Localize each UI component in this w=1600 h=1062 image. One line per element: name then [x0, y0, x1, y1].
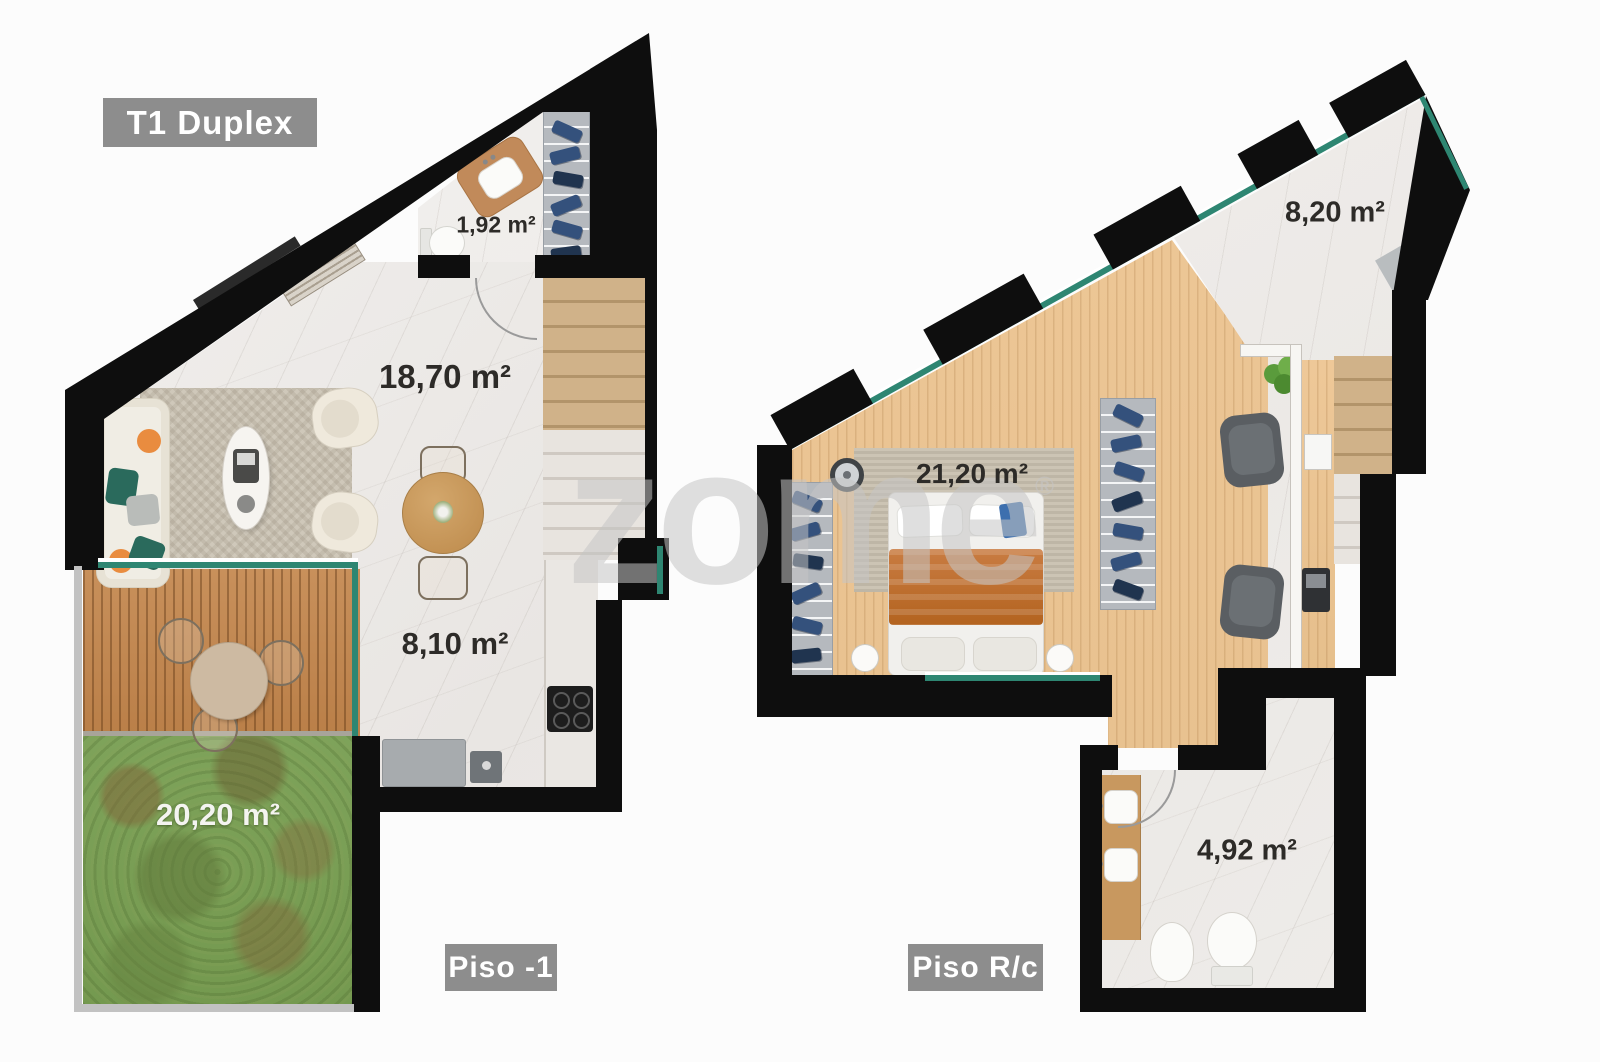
bathroom-rc-area-text: 4,92 m²	[1197, 835, 1297, 867]
floor-badge-piso-rc: Piso R/c	[908, 944, 1043, 991]
wall-bathroom-left-of-door	[418, 255, 470, 278]
foot-cushion	[901, 637, 965, 671]
garden-wall-bottom	[74, 1004, 354, 1012]
desk-counter	[1298, 360, 1335, 675]
living-area-text: 18,70 m²	[379, 358, 511, 395]
kitchen-island	[382, 739, 466, 787]
wall-garden-right	[352, 736, 380, 1012]
bedroom-window-glass	[925, 675, 1100, 681]
area-label-bathroom-1: 1,92 m²	[456, 212, 535, 239]
sliding-door-glass	[98, 562, 358, 568]
cooktop	[547, 686, 593, 732]
wall-bathroom-left	[1080, 745, 1102, 1012]
garden-lawn	[83, 736, 352, 1008]
area-label-bedroom: 21,20 m²	[916, 458, 1028, 490]
desk-chair	[1218, 563, 1285, 641]
watermark-text: zome	[566, 406, 1035, 625]
area-label-garden: 20,20 m²	[156, 797, 280, 833]
unit-badge: T1 Duplex	[103, 98, 317, 147]
floor-badge-piso-rc-label: Piso R/c	[912, 951, 1038, 985]
wall-bathroom-bottom	[1080, 988, 1366, 1012]
dining-table	[402, 472, 484, 554]
bathroom-area-text: 1,92 m²	[456, 212, 535, 238]
wall-kitchen-bottom	[352, 787, 622, 812]
deck-table	[190, 642, 268, 720]
wall-hall-right	[1218, 668, 1266, 748]
garden-area-text: 20,20 m²	[156, 797, 280, 832]
papers	[1304, 434, 1332, 470]
nightstand	[1046, 644, 1074, 672]
wardrobe-middle	[1100, 398, 1156, 610]
dining-chair	[418, 556, 468, 600]
toilet-rc	[1205, 912, 1257, 986]
bedroom-area-text: 21,20 m²	[916, 458, 1028, 489]
floor-badge-piso-1: Piso -1	[445, 944, 557, 991]
deck-glass-right	[352, 562, 358, 736]
desk-chair	[1218, 411, 1285, 489]
wall-right-upper	[1392, 290, 1426, 474]
foot-cushion	[973, 637, 1037, 671]
wall-bathroom-right	[1334, 676, 1366, 1012]
bathroom-sink	[1104, 848, 1138, 882]
wall-bathroom-right-of-door	[535, 255, 645, 278]
area-label-living: 18,70 m²	[379, 358, 511, 396]
stairs-rc	[1334, 356, 1392, 474]
floorplan-image: T1 Duplex 1,92 m² 18,70 m² 8,10 m² 20,20…	[0, 0, 1600, 1062]
area-label-entry: 8,20 m²	[1285, 197, 1385, 230]
wall-bathroom-top-mid	[1178, 745, 1266, 770]
closet	[543, 110, 590, 270]
interior-wall-vertical	[1290, 344, 1302, 676]
coffee-table	[222, 426, 270, 530]
floor-badge-piso-1-label: Piso -1	[448, 951, 553, 985]
garden-wall-left	[74, 566, 82, 1012]
bidet	[1150, 922, 1194, 982]
zome-watermark: zome®	[566, 418, 1054, 614]
kitchen-area-text: 8,10 m²	[402, 626, 509, 661]
unit-badge-label: T1 Duplex	[127, 104, 294, 142]
nightstand	[851, 644, 879, 672]
wall-bathroom-top-right	[1262, 668, 1366, 698]
wall-bedroom-bottom	[757, 675, 1112, 717]
wall-kitchen-right	[596, 600, 622, 812]
entry-area-text: 8,20 m²	[1285, 197, 1385, 229]
area-label-bathroom-2: 4,92 m²	[1197, 835, 1297, 868]
area-label-kitchen: 8,10 m²	[402, 626, 509, 662]
wall-right-lower	[1360, 474, 1396, 676]
watermark-registered-mark: ®	[1035, 471, 1054, 501]
laptop	[1302, 568, 1330, 612]
kitchen-sink	[470, 751, 502, 783]
